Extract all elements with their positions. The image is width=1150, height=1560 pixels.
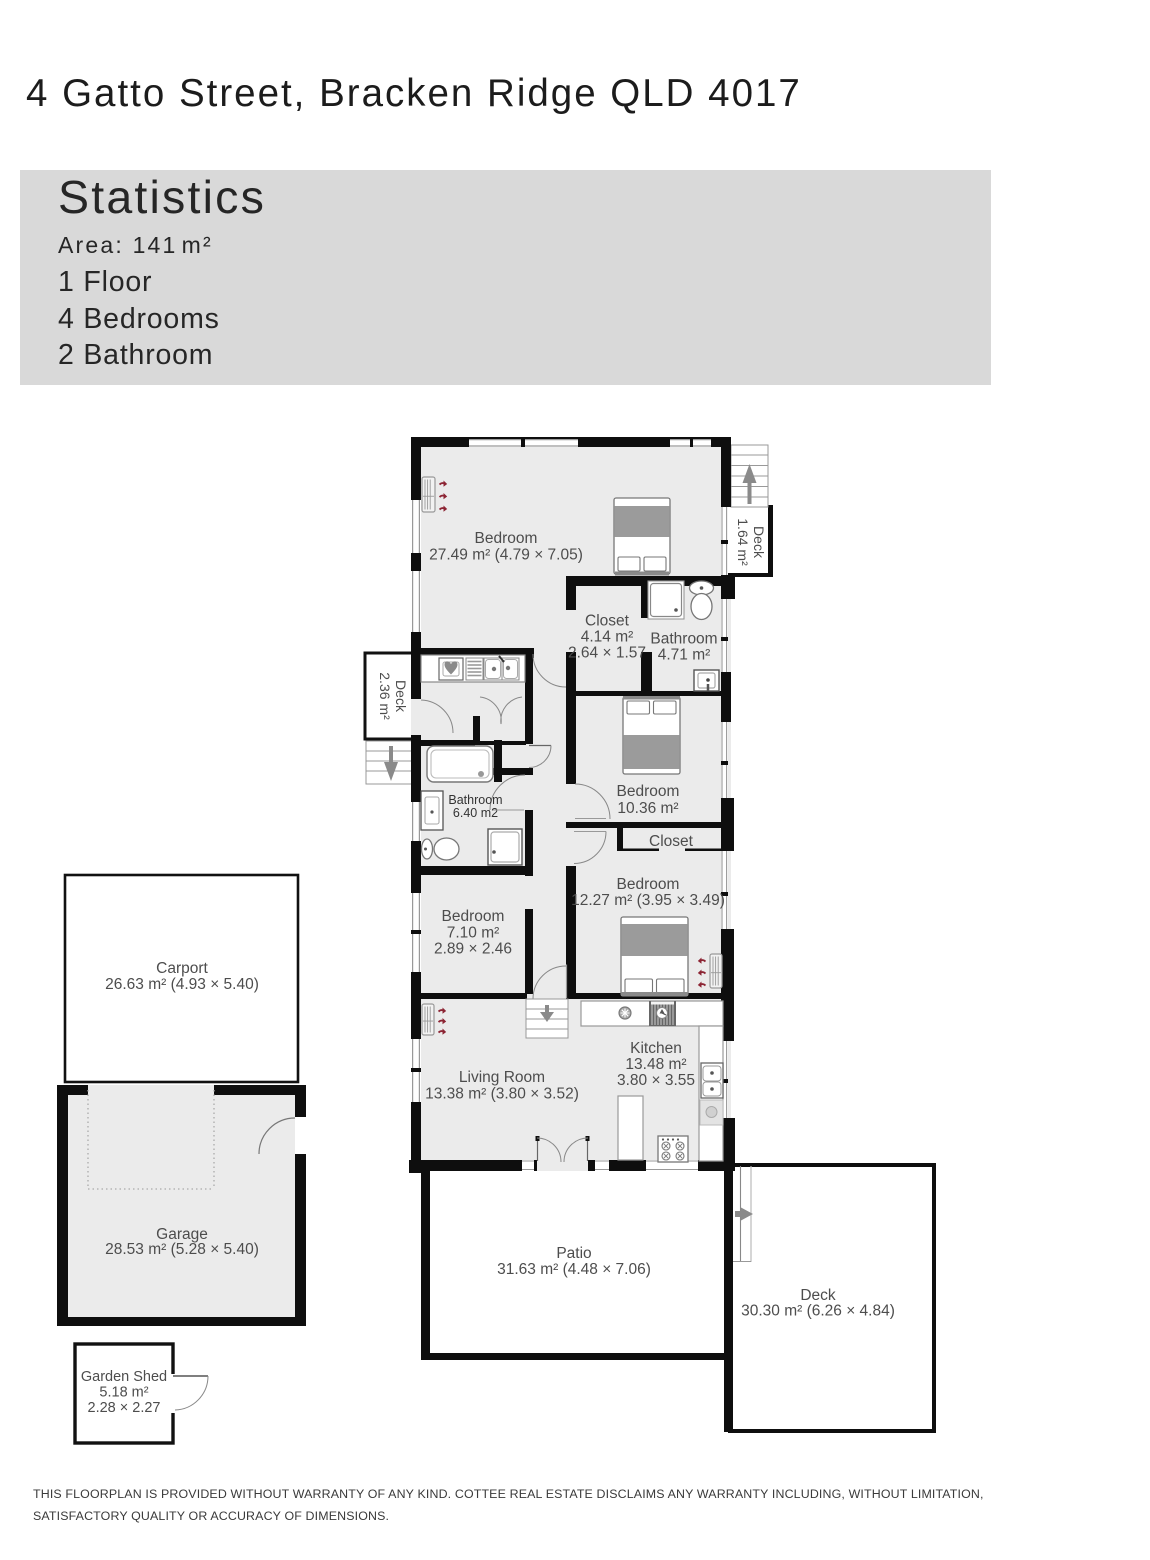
svg-text:13.48 m²: 13.48 m² xyxy=(625,1056,686,1073)
svg-text:Bedroom: Bedroom xyxy=(617,876,680,893)
svg-text:Bedroom: Bedroom xyxy=(475,530,538,547)
svg-text:31.63 m² (4.48 × 7.06): 31.63 m² (4.48 × 7.06) xyxy=(497,1261,651,1278)
svg-text:Kitchen: Kitchen xyxy=(630,1040,682,1057)
svg-text:Closet: Closet xyxy=(585,613,630,630)
svg-text:Closet: Closet xyxy=(649,833,694,850)
svg-text:1.64 m²: 1.64 m² xyxy=(735,518,751,566)
svg-text:2.64 × 1.57: 2.64 × 1.57 xyxy=(568,645,646,662)
svg-text:7.10 m²: 7.10 m² xyxy=(447,925,500,942)
svg-text:Carport: Carport xyxy=(156,960,208,977)
svg-text:26.63 m² (4.93 × 5.40): 26.63 m² (4.93 × 5.40) xyxy=(105,976,259,993)
svg-text:3.80 × 3.55: 3.80 × 3.55 xyxy=(617,1072,695,1089)
svg-text:5.18 m²: 5.18 m² xyxy=(99,1385,148,1401)
svg-text:12.27 m² (3.95 × 3.49): 12.27 m² (3.95 × 3.49) xyxy=(571,892,725,909)
svg-text:Garden Shed: Garden Shed xyxy=(81,1369,167,1385)
svg-text:Deck: Deck xyxy=(751,526,767,559)
svg-text:13.38 m² (3.80 × 3.52): 13.38 m² (3.80 × 3.52) xyxy=(425,1086,579,1103)
svg-text:27.49 m² (4.79 × 7.05): 27.49 m² (4.79 × 7.05) xyxy=(429,547,583,564)
svg-text:2.28 × 2.27: 2.28 × 2.27 xyxy=(88,1400,161,1416)
svg-text:Bedroom: Bedroom xyxy=(617,783,680,800)
svg-text:4.71 m²: 4.71 m² xyxy=(658,647,711,664)
svg-text:Deck: Deck xyxy=(393,680,409,713)
svg-text:Bathroom: Bathroom xyxy=(448,793,502,807)
svg-text:Deck: Deck xyxy=(800,1287,836,1304)
svg-text:28.53 m² (5.28 × 5.40): 28.53 m² (5.28 × 5.40) xyxy=(105,1241,259,1258)
svg-text:Living Room: Living Room xyxy=(459,1069,545,1086)
svg-text:2.89 × 2.46: 2.89 × 2.46 xyxy=(434,941,512,958)
svg-text:Bedroom: Bedroom xyxy=(442,908,505,925)
svg-text:4.14 m²: 4.14 m² xyxy=(581,629,634,646)
svg-text:Patio: Patio xyxy=(556,1245,591,1262)
svg-text:2.36 m²: 2.36 m² xyxy=(377,672,393,720)
svg-text:Bathroom: Bathroom xyxy=(650,631,717,648)
svg-text:30.30 m² (6.26 × 4.84): 30.30 m² (6.26 × 4.84) xyxy=(741,1303,895,1320)
svg-text:10.36 m²: 10.36 m² xyxy=(617,800,678,817)
svg-text:6.40 m2: 6.40 m2 xyxy=(453,806,498,820)
